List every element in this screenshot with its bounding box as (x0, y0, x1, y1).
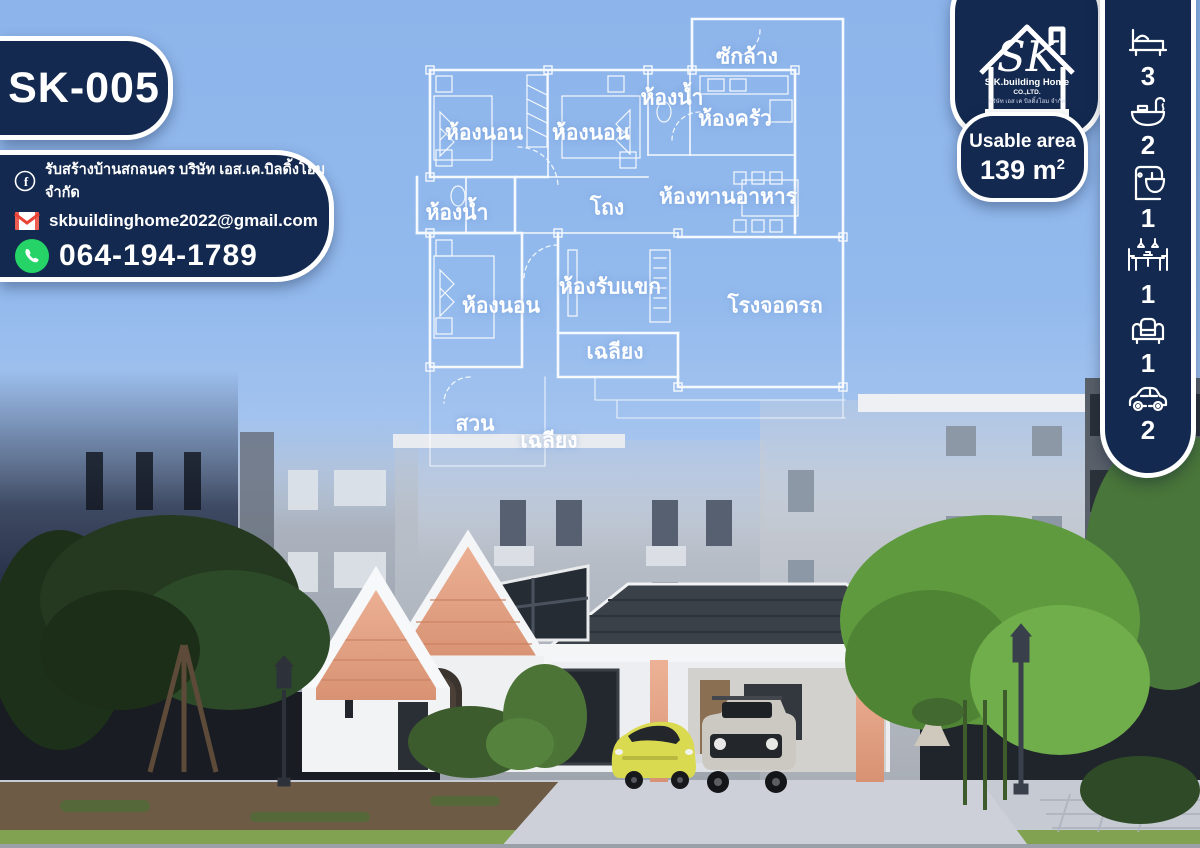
usable-area-label: Usable area (969, 131, 1076, 153)
usable-area-value: 139 m2 (980, 155, 1065, 186)
amenity-living: 1 (1124, 312, 1172, 376)
amenity-strip: 3 2 1 1 (1100, 0, 1196, 478)
kitchen-mixer-icon (1126, 163, 1170, 203)
amenity-dining: 1 (1124, 237, 1172, 307)
email-text: skbuildinghome2022@gmail.com (49, 211, 318, 231)
car-icon (1124, 381, 1172, 415)
amenity-bedrooms: 3 (1125, 27, 1171, 89)
model-code-text: SK-005 (8, 64, 160, 113)
floor-plan (395, 0, 865, 480)
sofa-icon (1124, 312, 1172, 348)
phone-text: 064-194-1789 (59, 239, 258, 273)
dining-table-icon (1124, 237, 1172, 279)
amenity-parking: 2 (1124, 381, 1172, 443)
usable-area-badge: Usable area 139 m2 (957, 112, 1088, 202)
phone-row: 064-194-1789 (14, 238, 329, 274)
bed-icon (1125, 27, 1171, 61)
facebook-icon: f (14, 170, 36, 192)
svg-text:S.K.building Home: S.K.building Home (984, 77, 1068, 88)
amenity-bathrooms: 2 (1125, 94, 1171, 158)
poster-canvas: ซักล้างห้องน้ำห้องครัวห้องนอนห้องนอนห้อง… (0, 0, 1200, 848)
whatsapp-icon (14, 238, 50, 274)
facebook-row: f รับสร้างบ้านสกลนคร บริษัท เอส.เค.บิลดิ… (14, 158, 329, 204)
bathtub-icon (1125, 94, 1171, 130)
amenity-kitchen: 1 (1126, 163, 1170, 231)
email-row: skbuildinghome2022@gmail.com (14, 211, 329, 231)
facebook-text: รับสร้างบ้านสกลนคร บริษัท เอส.เค.บิลดิ้ง… (45, 158, 329, 204)
model-code-badge: SK-005 (0, 36, 173, 140)
contact-card: f รับสร้างบ้านสกลนคร บริษัท เอส.เค.บิลดิ… (0, 150, 334, 282)
svg-text:CO.,LTD.: CO.,LTD. (1013, 89, 1041, 96)
svg-text:f: f (24, 174, 29, 189)
svg-text:บริษัท เอส เค บิลดิ้งโฮม จำกัด: บริษัท เอส เค บิลดิ้งโฮม จำกัด (988, 95, 1065, 105)
svg-text:SK: SK (996, 32, 1059, 81)
gmail-icon (14, 211, 40, 231)
